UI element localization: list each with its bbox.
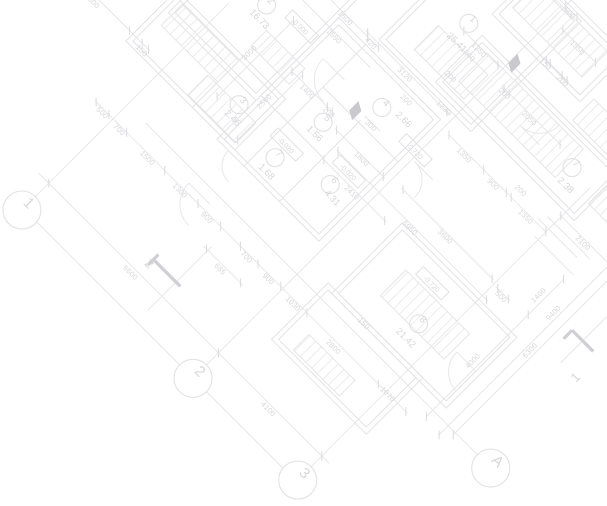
dimension-label: 700 (111, 122, 127, 138)
section-label: 2 (142, 256, 158, 272)
dimension-label: 200 (398, 92, 414, 108)
grid-bubble-label: 2 (191, 363, 209, 381)
dimension-label: 1350 (455, 146, 474, 165)
level-label: -0.720 (405, 142, 424, 161)
walls (49, 0, 607, 461)
room-area-label: 2.66 (393, 109, 414, 130)
dimension-label: 1300 (171, 181, 190, 200)
level-label: 0.000 (291, 19, 308, 36)
entry-arrow-mark (346, 101, 365, 120)
dimension-label: 150 (538, 56, 554, 72)
dimension-label: 2560 (255, 92, 274, 111)
section-label: 1 (567, 369, 583, 385)
dimension-label: 1500 (138, 149, 157, 168)
dimension-label: 1350 (516, 207, 535, 226)
dimension-label: 6600 (121, 263, 140, 282)
dimension-label: 2410 (342, 183, 361, 202)
dimension-label: 900 (261, 271, 277, 287)
dimension-label: 3120 (395, 65, 414, 84)
grid-bubbles: 1 2 3 A (0, 78, 518, 506)
room-number-bubble (456, 11, 481, 36)
dimension-label: 1070 (378, 385, 397, 404)
dimension-label: 200 (513, 183, 529, 199)
dimension-label: 500 (94, 105, 110, 121)
dimension-label: 5950 (400, 219, 419, 238)
dimension-label: 1800 (352, 149, 371, 168)
room-area-label: 16.73 (247, 7, 272, 32)
dimension-label: 900 (485, 176, 501, 192)
dimension-label: 300 (363, 118, 379, 134)
dimension-label: 1400 (298, 82, 317, 101)
dimension-label: 200 (555, 73, 571, 89)
level-label: -0.020 (338, 163, 357, 182)
dimension-label: 3600 (436, 227, 455, 246)
dimension-label: 2100 (574, 234, 593, 253)
room-area-label: 2.38 (555, 175, 576, 196)
dimension-label: 150 (356, 316, 372, 332)
blueprint-canvas: 2 1 1 2 3 A 1 25.41 2 16.73 (0, 0, 607, 506)
dimension-label: 700 (239, 249, 255, 265)
grid-bubble-label: 3 (295, 464, 313, 482)
dimension-label: 420 (363, 36, 379, 52)
room-number-bubble (369, 95, 394, 120)
section-markers: 2 1 (123, 0, 607, 506)
dimension-label: 500 (493, 289, 509, 305)
room-area-label: 1.68 (256, 162, 277, 183)
dimension-label: 6300 (521, 341, 540, 360)
dimension-label: 9400 (544, 304, 563, 323)
dimension-label: 685 (212, 261, 228, 277)
dimension-label: 900 (199, 210, 215, 226)
grid-bubble-label: 1 (20, 194, 38, 212)
rotated-plan-group: 2 1 1 2 3 A 1 25.41 2 16.73 (0, 0, 607, 506)
floorplan-drawing: 2 1 1 2 3 A 1 25.41 2 16.73 (0, 0, 607, 506)
dimension-label: 1030 (284, 294, 303, 313)
dimension-label: 1400 (529, 286, 548, 305)
dimension-label: 2600 (83, 0, 102, 10)
dimension-label: 4100 (259, 400, 278, 419)
grid-bubble-label: A (488, 452, 507, 471)
